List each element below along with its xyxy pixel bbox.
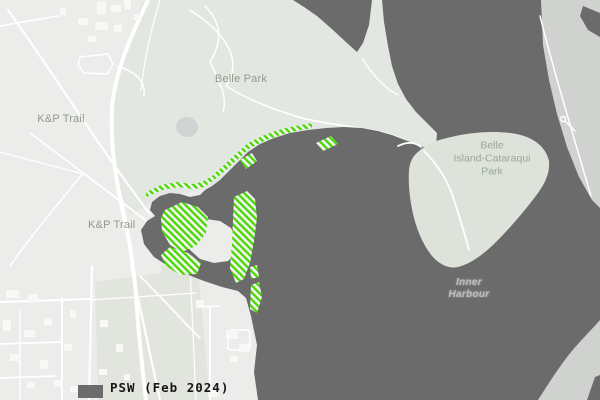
basemap bbox=[0, 0, 600, 400]
map-canvas[interactable]: K&P Trail K&P Trail Belle Park Belle Isl… bbox=[0, 0, 600, 400]
